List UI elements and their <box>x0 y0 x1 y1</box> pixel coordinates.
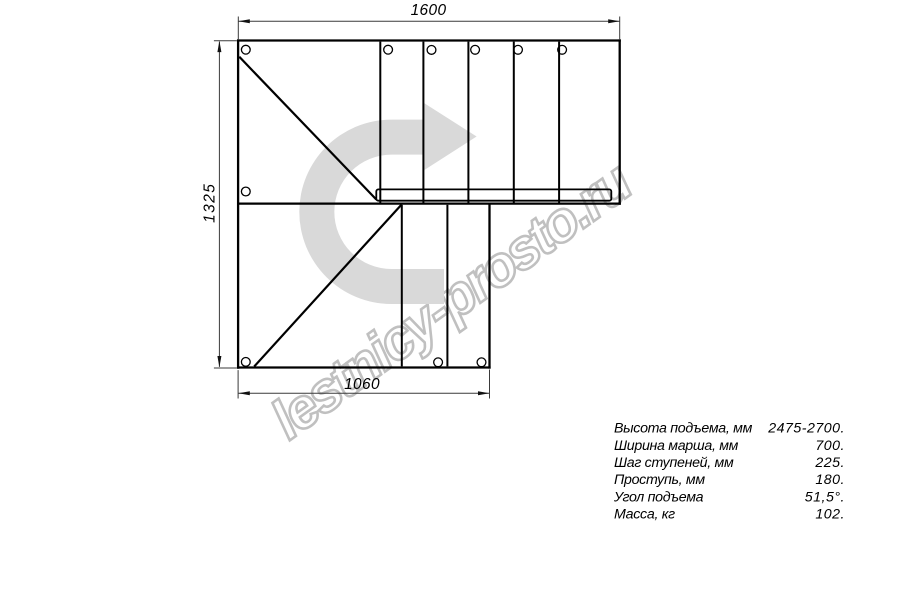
svg-text:Высота подъема, мм: Высота подъема, мм <box>614 421 753 437</box>
svg-text:1060: 1060 <box>344 376 380 393</box>
svg-text:225.: 225. <box>814 455 845 471</box>
svg-text:1325: 1325 <box>202 183 219 223</box>
svg-text:Ширина марша, мм: Ширина марша, мм <box>614 438 739 454</box>
svg-text:1600: 1600 <box>411 2 447 19</box>
svg-text:2475-2700.: 2475-2700. <box>767 421 845 437</box>
svg-text:102.: 102. <box>815 507 845 523</box>
svg-text:Шаг ступеней, мм: Шаг ступеней, мм <box>614 455 734 471</box>
svg-text:700.: 700. <box>815 438 845 454</box>
svg-text:180.: 180. <box>815 472 845 488</box>
svg-text:Масса, кг: Масса, кг <box>614 507 675 523</box>
svg-text:Проступь, мм: Проступь, мм <box>614 472 705 488</box>
svg-text:Угол подъема: Угол подъема <box>613 490 704 506</box>
svg-text:51,5°.: 51,5°. <box>805 490 845 506</box>
